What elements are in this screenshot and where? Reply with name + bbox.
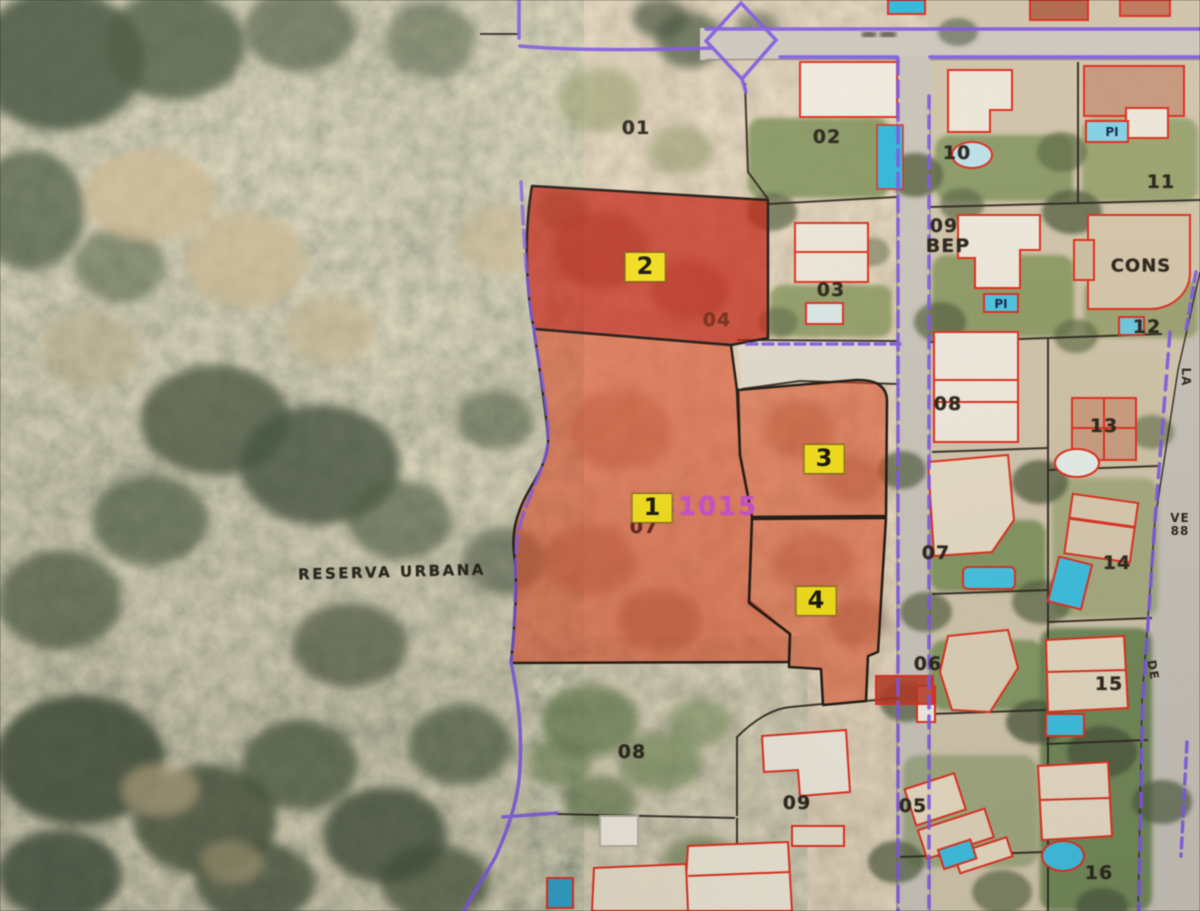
pool-label-1: PI (994, 297, 1007, 311)
plot-marker-3: 3 (804, 444, 845, 474)
parcel-number-08-13: 08 (934, 393, 962, 415)
parcel-number-06-17: 06 (914, 653, 942, 675)
parcel-number-cons-11: CONS (1111, 256, 1172, 277)
parcel-number-10-7: 10 (943, 142, 971, 164)
plot-marker-2: 2 (625, 252, 666, 282)
parcel-number-09-6: 09 (783, 792, 811, 814)
plot-marker-1: 1 (632, 493, 673, 523)
parcel-number-bep-9: BEP (926, 235, 970, 257)
parcel-number-09-8: 09 (930, 215, 958, 237)
parcel-number-16-20: 16 (1085, 862, 1113, 884)
parcel-number-02-1: 02 (813, 126, 841, 148)
parcel-number-14-16: 14 (1103, 552, 1131, 574)
parcel-number-05-19: 05 (899, 795, 927, 817)
area-name-label: RESERVA URBANA (298, 561, 486, 584)
parcel-number-07-15: 07 (922, 542, 950, 564)
parcel-number-15-18: 15 (1095, 673, 1123, 695)
pool-label-0: PI (1105, 125, 1118, 139)
map-labels-layer: RESERVA URBANA 81015 1234010203040708091… (0, 0, 1200, 911)
plot-marker-4: 4 (796, 586, 837, 616)
plan-ref-label: 81015 (658, 492, 758, 522)
parcel-number-08-5: 08 (618, 741, 646, 763)
parcel-number-04-3: 04 (703, 309, 731, 331)
street-label-88-2: 88 (1171, 524, 1190, 538)
parcel-number-13-14: 13 (1090, 415, 1118, 437)
map-viewport: RESERVA URBANA 81015 1234010203040708091… (0, 0, 1200, 911)
parcel-number-03-2: 03 (817, 279, 845, 301)
parcel-number-11-10: 11 (1147, 171, 1175, 193)
parcel-number-01-0: 01 (622, 117, 650, 139)
street-label-de-3: DE (1144, 659, 1161, 681)
street-label-ve-1: VE (1170, 511, 1189, 525)
street-label-la-0: LA (1179, 368, 1193, 387)
parcel-number-12-12: 12 (1133, 316, 1161, 338)
